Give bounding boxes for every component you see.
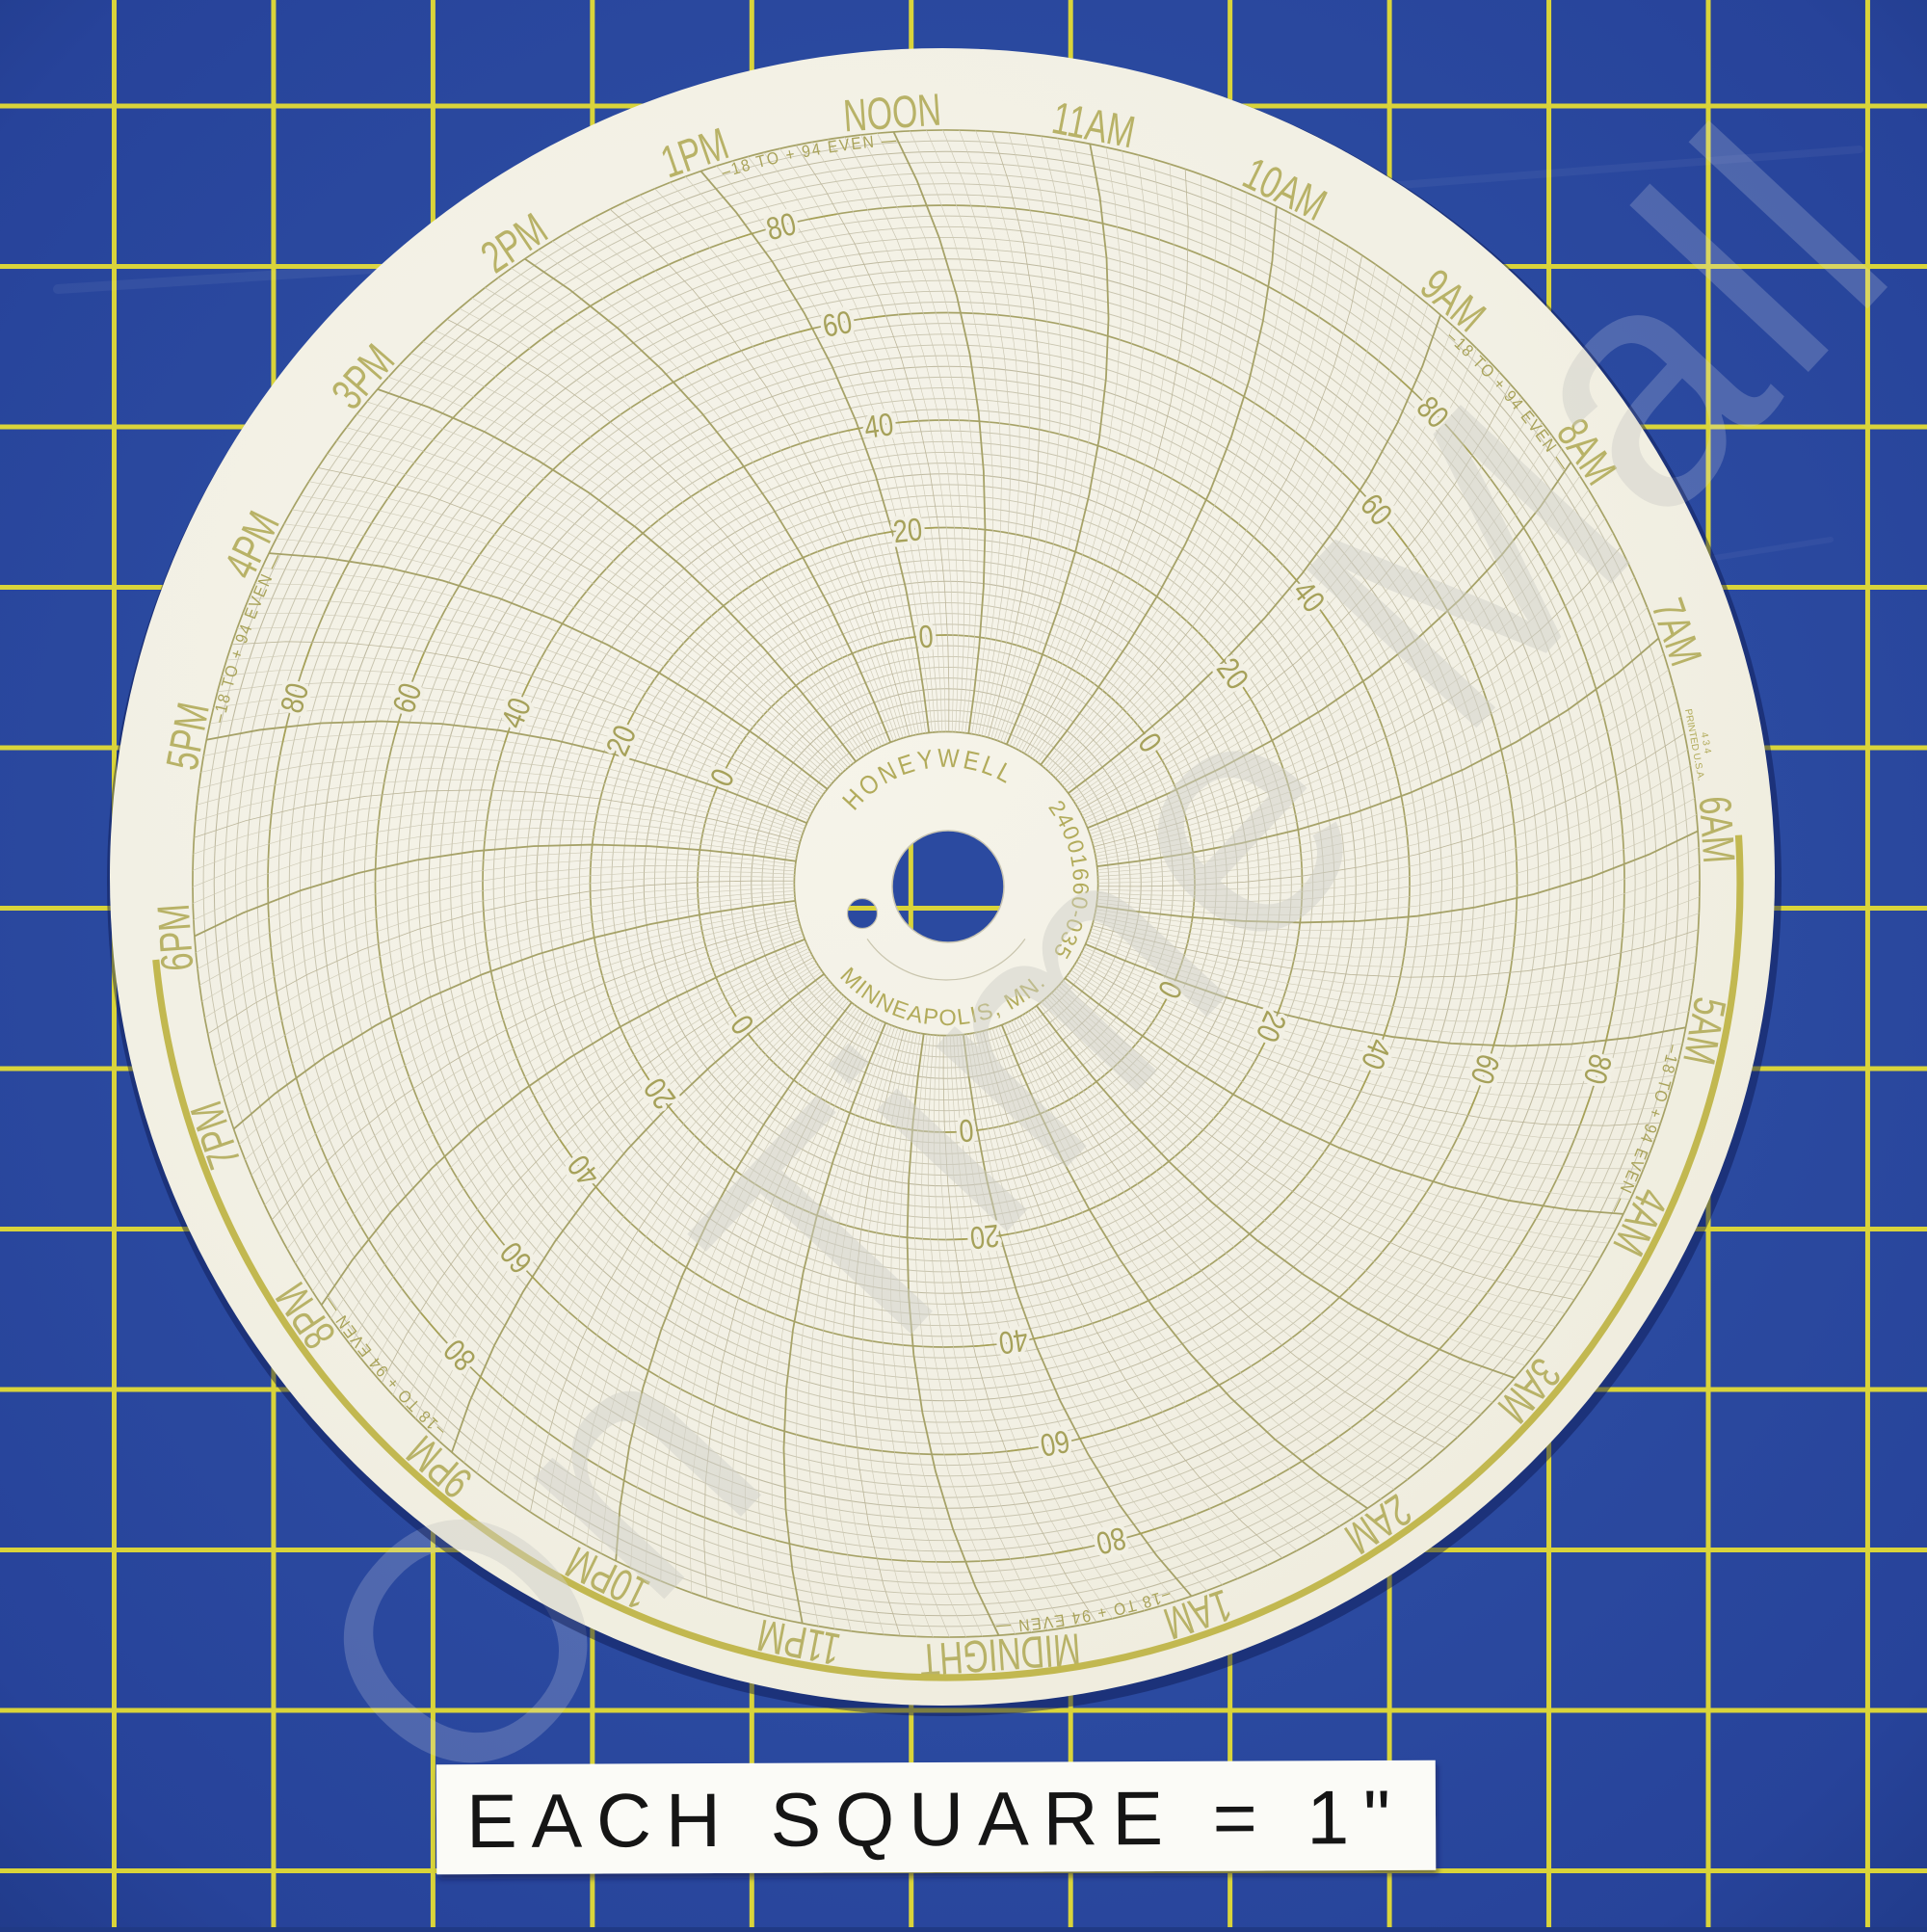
svg-text:EACH SQUARE = 1": EACH SQUARE = 1" [466,1774,1405,1864]
svg-text:NOON: NOON [842,84,943,142]
svg-text:40: 40 [862,408,896,446]
svg-text:0: 0 [917,620,935,655]
svg-text:20: 20 [891,513,924,550]
